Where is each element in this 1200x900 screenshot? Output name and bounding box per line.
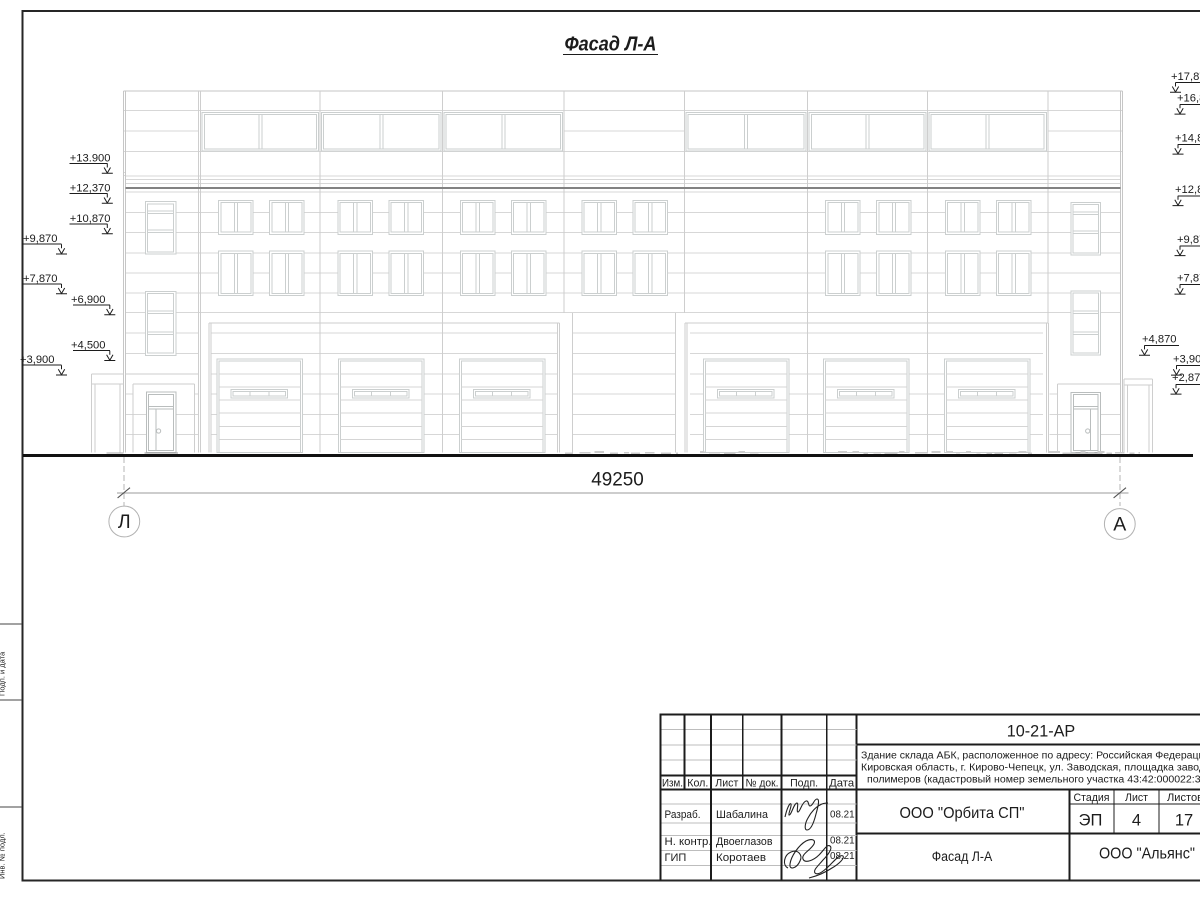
svg-text:4: 4: [1132, 812, 1141, 830]
svg-text:Н. контр.: Н. контр.: [665, 836, 712, 848]
svg-text:Лист: Лист: [1125, 792, 1148, 804]
svg-text:+9,870: +9,870: [1177, 234, 1200, 246]
svg-text:Л: Л: [118, 511, 131, 533]
svg-text:Дата: Дата: [829, 777, 855, 789]
svg-text:49250: 49250: [591, 469, 644, 491]
svg-text:+3,900: +3,900: [20, 354, 55, 366]
svg-text:Подп.: Подп.: [790, 777, 818, 789]
svg-text:10-21-АР: 10-21-АР: [1007, 722, 1076, 741]
svg-text:Инв. № подл.: Инв. № подл.: [0, 832, 7, 879]
svg-text:Здание склада АБК, расположенн: Здание склада АБК, расположенное по адре…: [861, 751, 1200, 762]
svg-text:+13.900: +13.900: [70, 153, 111, 165]
svg-text:Разраб.: Разраб.: [665, 809, 701, 821]
svg-text:08.21: 08.21: [830, 809, 855, 821]
svg-text:+7,870: +7,870: [1177, 273, 1200, 285]
svg-text:Листов: Листов: [1167, 792, 1200, 804]
svg-text:+6,900: +6,900: [71, 294, 106, 306]
svg-text:Кол.: Кол.: [687, 777, 708, 789]
svg-text:+12,370: +12,370: [70, 183, 111, 195]
svg-text:Стадия: Стадия: [1074, 792, 1110, 804]
svg-text:17: 17: [1175, 812, 1193, 830]
svg-text:+4,500: +4,500: [71, 340, 106, 352]
svg-text:08.21: 08.21: [830, 835, 855, 847]
svg-text:ООО "Орбита СП": ООО "Орбита СП": [900, 805, 1025, 822]
svg-text:+17,870: +17,870: [1171, 71, 1200, 83]
svg-text:полимеров (кадастровый номер з: полимеров (кадастровый номер земельного …: [867, 775, 1200, 786]
svg-text:+16,870: +16,870: [1177, 93, 1200, 105]
svg-text:+7,870: +7,870: [23, 273, 58, 285]
svg-text:Шабалина: Шабалина: [716, 809, 769, 821]
svg-text:+9,870: +9,870: [23, 233, 58, 245]
svg-text:+2,870: +2,870: [1172, 372, 1200, 384]
svg-text:+3,900: +3,900: [1173, 354, 1200, 366]
svg-text:+4,870: +4,870: [1142, 334, 1177, 346]
svg-text:ГИП: ГИП: [665, 852, 687, 864]
svg-text:Фасад Л-А: Фасад Л-А: [565, 33, 657, 56]
svg-text:Лист: Лист: [715, 777, 738, 789]
svg-text:ООО "Альянс": ООО "Альянс": [1099, 846, 1195, 863]
svg-text:+12,870: +12,870: [1175, 184, 1200, 196]
svg-text:Подп. и дата: Подп. и дата: [0, 651, 7, 696]
svg-text:Коротаев: Коротаев: [716, 852, 766, 864]
svg-text:Фасад Л-А: Фасад Л-А: [932, 849, 993, 864]
svg-text:+10,870: +10,870: [70, 213, 111, 225]
svg-text:Двоеглазов: Двоеглазов: [716, 836, 773, 848]
svg-text:Кировская область, г. Кирово-Ч: Кировская область, г. Кирово-Чепецк, ул.…: [861, 763, 1200, 774]
svg-text:ЭП: ЭП: [1079, 812, 1103, 830]
svg-text:А: А: [1113, 514, 1126, 536]
svg-text:№ док.: № док.: [746, 777, 779, 789]
svg-text:Изм.: Изм.: [662, 777, 683, 789]
svg-text:+14,870: +14,870: [1175, 133, 1200, 145]
